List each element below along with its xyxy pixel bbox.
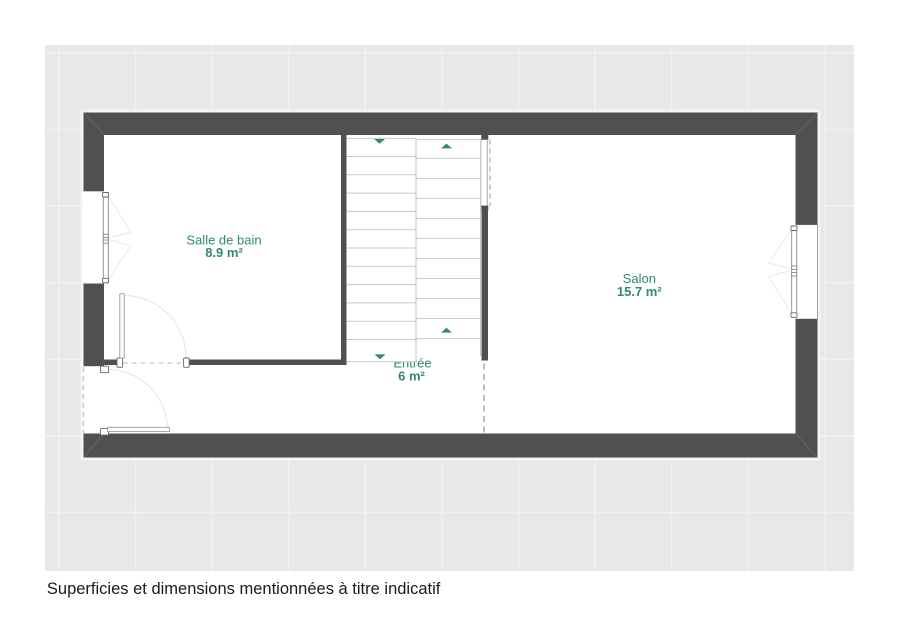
svg-text:15.7 m²: 15.7 m² [617, 284, 662, 299]
svg-text:6 m²: 6 m² [398, 368, 425, 383]
svg-text:8.9 m²: 8.9 m² [205, 245, 243, 260]
svg-text:Superficies et dimensions ment: Superficies et dimensions mentionnées à … [47, 580, 441, 598]
